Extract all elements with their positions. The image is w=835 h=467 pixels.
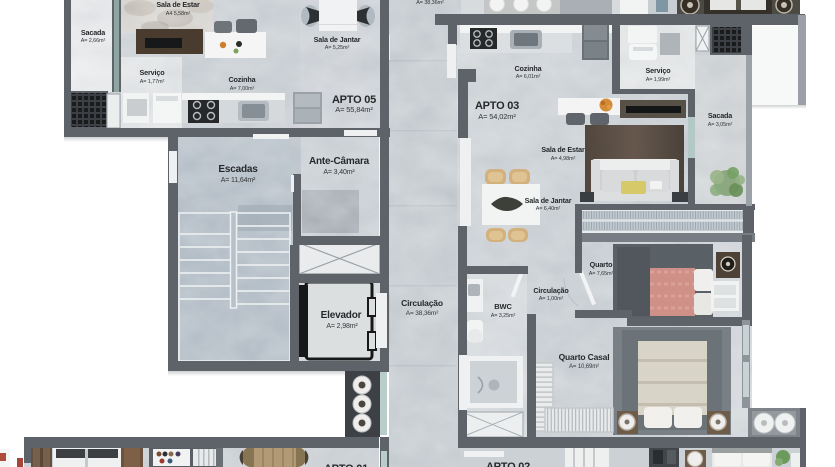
svg-text:A= 6,01m²: A= 6,01m²	[516, 74, 541, 80]
svg-text:Serviço: Serviço	[646, 66, 672, 75]
svg-text:Sacada: Sacada	[81, 28, 106, 37]
svg-text:Circulação: Circulação	[401, 298, 443, 308]
svg-text:A= 6,40m²: A= 6,40m²	[536, 206, 561, 212]
svg-text:Escadas: Escadas	[218, 164, 258, 175]
svg-text:A= 11,64m²: A= 11,64m²	[221, 177, 256, 184]
svg-text:A= 3,05m²: A= 3,05m²	[708, 122, 733, 128]
svg-text:A= 54,02m²: A= 54,02m²	[478, 112, 516, 121]
svg-text:Quarto: Quarto	[590, 260, 613, 269]
svg-text:Sala de Estar: Sala de Estar	[156, 0, 200, 9]
svg-text:A= 2,66m²: A= 2,66m²	[81, 38, 106, 44]
svg-text:APTO 02: APTO 02	[486, 461, 530, 467]
svg-text:A= 5,25m²: A= 5,25m²	[325, 45, 350, 51]
svg-text:A= 3,25m²: A= 3,25m²	[491, 313, 516, 319]
svg-text:Cozinha: Cozinha	[229, 75, 257, 84]
svg-text:A= 7,65m²: A= 7,65m²	[589, 271, 614, 277]
svg-text:A= 3,40m²: A= 3,40m²	[323, 169, 355, 176]
svg-text:A= 38,36m²: A= 38,36m²	[416, 0, 444, 6]
svg-text:A= 55,84m²: A= 55,84m²	[335, 105, 373, 114]
svg-text:A= 38,36m²: A= 38,36m²	[406, 310, 439, 317]
svg-text:Cozinha: Cozinha	[515, 64, 543, 73]
svg-text:Ante-Câmara: Ante-Câmara	[309, 156, 370, 167]
svg-text:Sala de Jantar: Sala de Jantar	[525, 196, 572, 205]
svg-text:Elevador: Elevador	[321, 310, 362, 321]
svg-text:A= 10,69m²: A= 10,69m²	[569, 364, 599, 370]
svg-text:A= 1,77m²: A= 1,77m²	[140, 79, 165, 85]
svg-text:BWC: BWC	[494, 302, 512, 311]
svg-text:Quarto Casal: Quarto Casal	[559, 352, 610, 362]
svg-text:A= 2,98m²: A= 2,98m²	[326, 323, 358, 330]
svg-text:A= 1,99m²: A= 1,99m²	[646, 77, 671, 83]
svg-text:APTO 03: APTO 03	[475, 100, 519, 112]
svg-text:Sacada: Sacada	[708, 111, 733, 120]
svg-text:A= 4,98m²: A= 4,98m²	[551, 156, 576, 162]
svg-text:A4 5,58m²: A4 5,58m²	[166, 11, 191, 17]
svg-text:Circulação: Circulação	[533, 286, 569, 295]
svg-text:Sala de Jantar: Sala de Jantar	[314, 35, 361, 44]
svg-text:APTO 01: APTO 01	[324, 463, 368, 467]
svg-text:Serviço: Serviço	[140, 68, 166, 77]
svg-text:A= 1,00m²: A= 1,00m²	[539, 296, 564, 302]
svg-text:A= 7,00m²: A= 7,00m²	[230, 86, 255, 92]
svg-text:Sala de Estar: Sala de Estar	[541, 145, 585, 154]
